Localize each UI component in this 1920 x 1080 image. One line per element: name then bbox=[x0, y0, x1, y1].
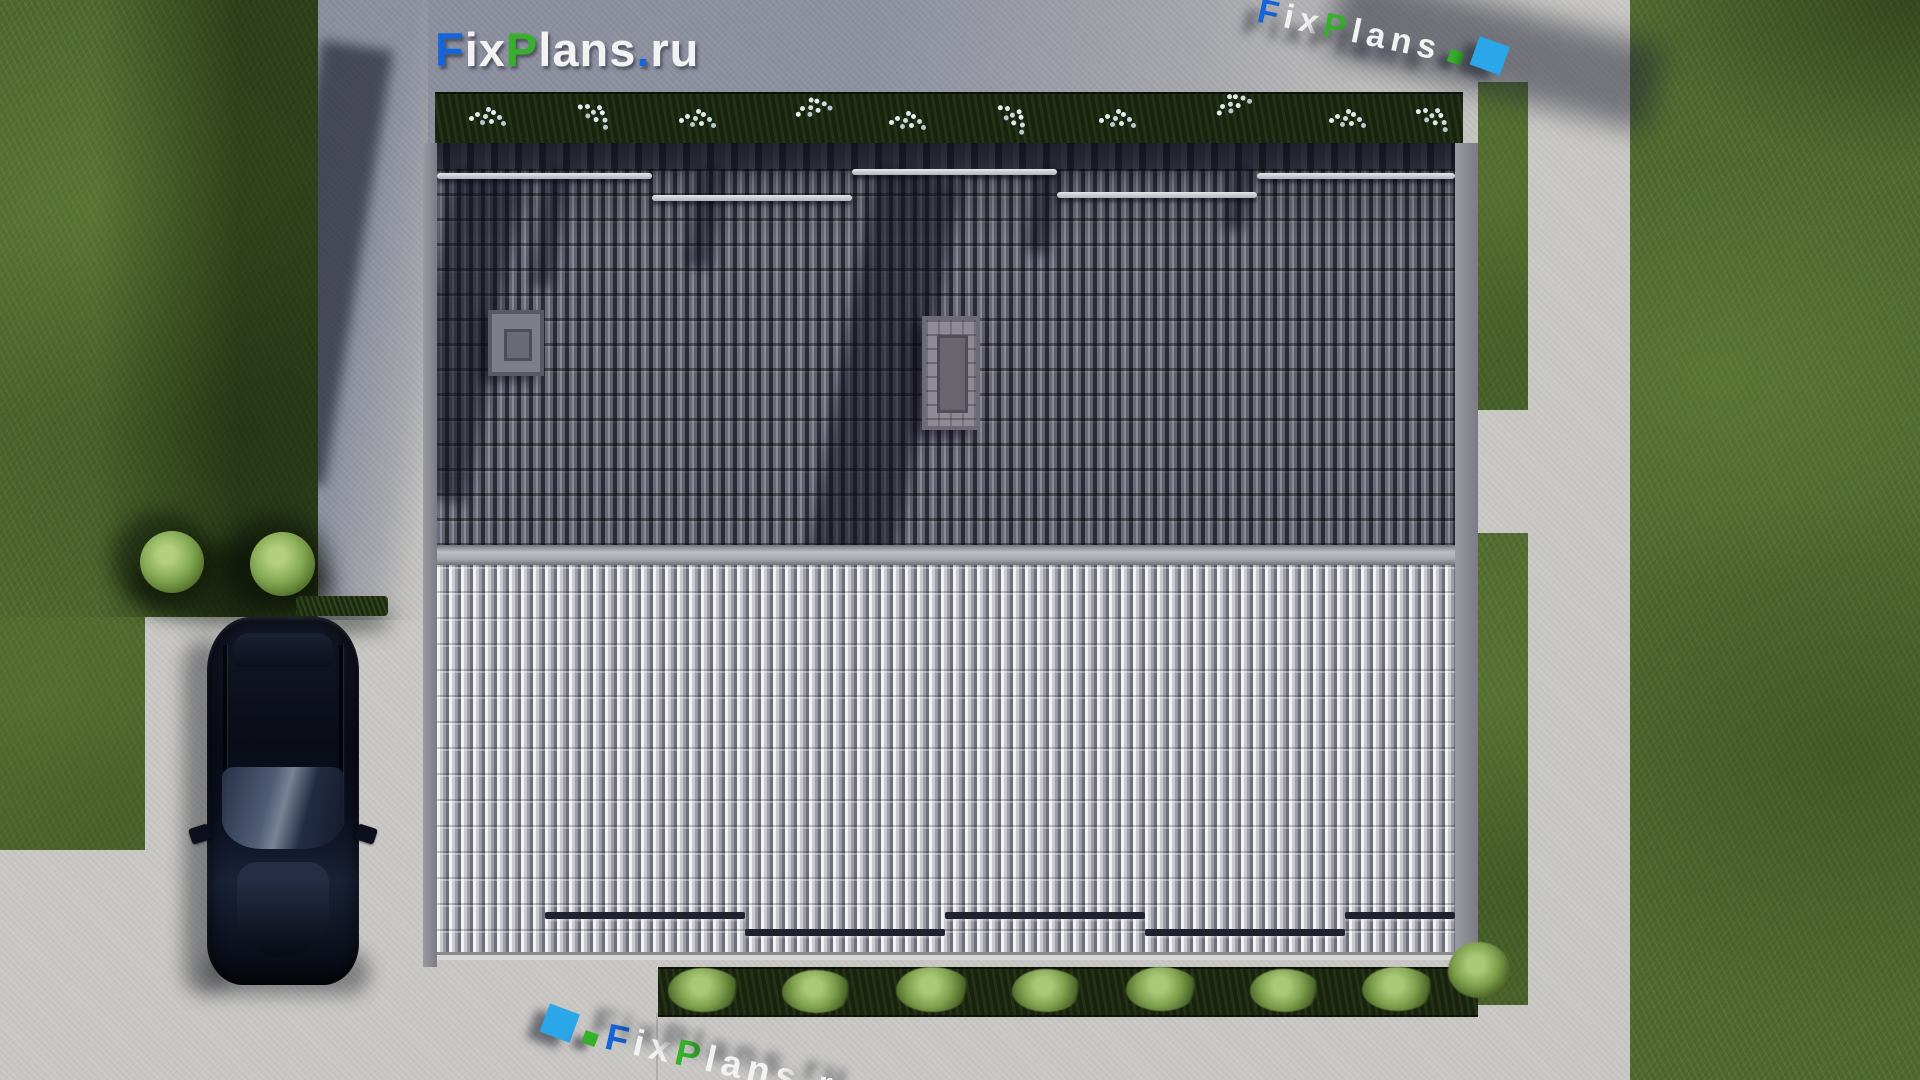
logo-letter: ru bbox=[650, 23, 699, 76]
bush bbox=[1362, 967, 1434, 1011]
flower-cluster bbox=[584, 103, 591, 110]
fixplans-logo: FixPlans.ru bbox=[435, 22, 699, 77]
bush bbox=[1126, 967, 1198, 1011]
flower-cluster bbox=[1004, 105, 1011, 112]
snow-guard-rail bbox=[1257, 173, 1455, 179]
logo-accent-square-icon bbox=[581, 1030, 599, 1047]
snow-guard-rail-dark bbox=[1145, 929, 1345, 936]
bush bbox=[1012, 969, 1082, 1012]
cursor-block-icon bbox=[539, 1003, 579, 1042]
snow-guard-rail-dark bbox=[545, 912, 745, 919]
flower-cluster bbox=[895, 116, 900, 121]
roof-slope-light bbox=[437, 565, 1455, 960]
snow-guard-rail-dark bbox=[745, 929, 945, 936]
bush bbox=[668, 968, 740, 1012]
snow-guard-rail-dark bbox=[945, 912, 1145, 919]
logo-letter: . bbox=[636, 23, 650, 76]
roof-vent bbox=[488, 310, 544, 376]
car bbox=[207, 617, 359, 985]
roof-vent-cap bbox=[504, 329, 532, 361]
car-hood bbox=[237, 862, 329, 957]
logo-letter: lans bbox=[538, 23, 636, 76]
lawn-left-lower bbox=[0, 617, 145, 850]
roof-fascia-right bbox=[1455, 143, 1478, 967]
roof-ridge-bar bbox=[437, 545, 1455, 565]
flower-cluster bbox=[475, 112, 480, 117]
roof-eave bbox=[437, 952, 1455, 960]
snow-guard-rail bbox=[1057, 192, 1257, 198]
snow-guard-rail bbox=[437, 173, 652, 179]
bush bbox=[1250, 969, 1320, 1012]
flower-cluster bbox=[799, 105, 805, 111]
flower-cluster bbox=[685, 114, 690, 119]
flower-cluster bbox=[1219, 103, 1226, 110]
flower-cluster bbox=[1105, 114, 1110, 119]
snow-guard-rail bbox=[852, 169, 1057, 175]
aerial-house-render: FixPlans.ru FixPlans FixPlans.ru bbox=[0, 0, 1920, 1080]
chimney bbox=[922, 316, 980, 430]
grass-strip-right-upper bbox=[1478, 82, 1528, 410]
flower-cluster bbox=[1335, 114, 1340, 119]
car-windshield bbox=[222, 767, 344, 849]
snow-guard-rail-dark bbox=[1345, 912, 1455, 919]
flower-bed-top bbox=[435, 92, 1463, 149]
logo-letter: P bbox=[506, 23, 538, 76]
corner-shade bbox=[1630, 0, 1920, 1080]
round-bush bbox=[250, 532, 315, 596]
watermark-letter: lans bbox=[701, 1038, 806, 1080]
logo-accent-square-icon bbox=[1447, 49, 1465, 66]
chimney-flue bbox=[937, 335, 968, 413]
roof-slope-dark bbox=[437, 143, 1455, 551]
bush bbox=[782, 970, 852, 1013]
lawn-right bbox=[1630, 0, 1920, 1080]
roof-fascia-left bbox=[423, 143, 437, 967]
watermark-letter: ru bbox=[813, 1063, 870, 1080]
logo-letter: F bbox=[435, 23, 465, 76]
snow-guard-rail bbox=[652, 195, 852, 201]
logo-letter: ix bbox=[465, 23, 506, 76]
round-bush bbox=[140, 531, 204, 593]
hedge-strip bbox=[296, 596, 388, 616]
grass-strip-right-lower bbox=[1478, 533, 1528, 1005]
flower-cluster bbox=[1422, 107, 1429, 114]
car-rear-window bbox=[233, 633, 333, 667]
corner-bush bbox=[1448, 942, 1510, 998]
bush bbox=[896, 967, 970, 1012]
